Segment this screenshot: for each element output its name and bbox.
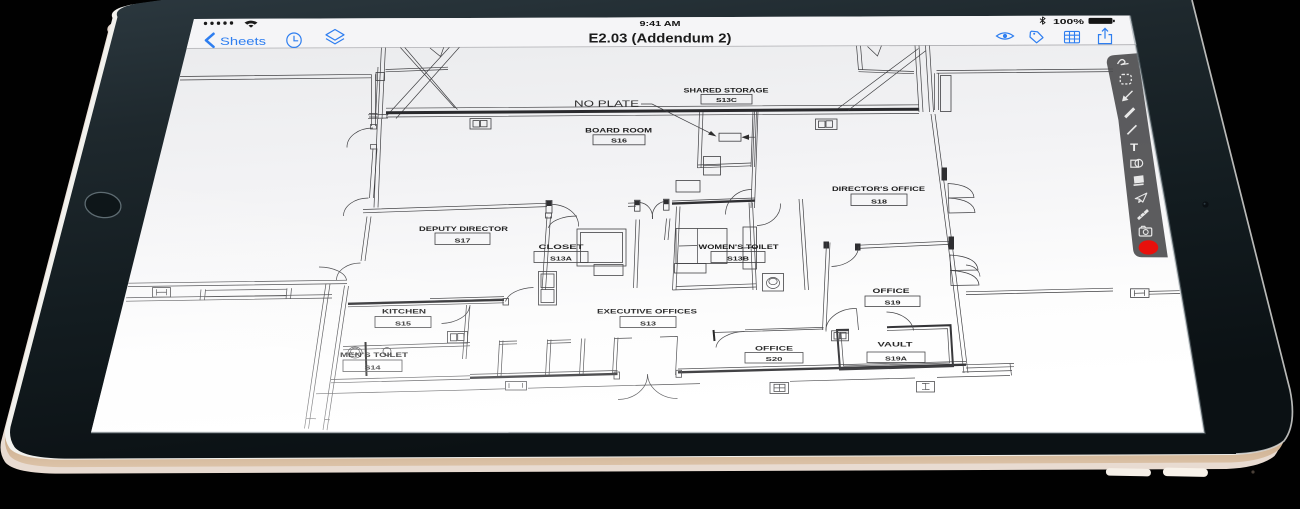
svg-text:Sheets: Sheets: [220, 35, 266, 48]
svg-text:9:41 AM: 9:41 AM: [640, 20, 682, 28]
svg-text:100%: 100%: [1053, 17, 1084, 26]
svg-text:E2.03 (Addendum 2): E2.03 (Addendum 2): [589, 31, 732, 45]
